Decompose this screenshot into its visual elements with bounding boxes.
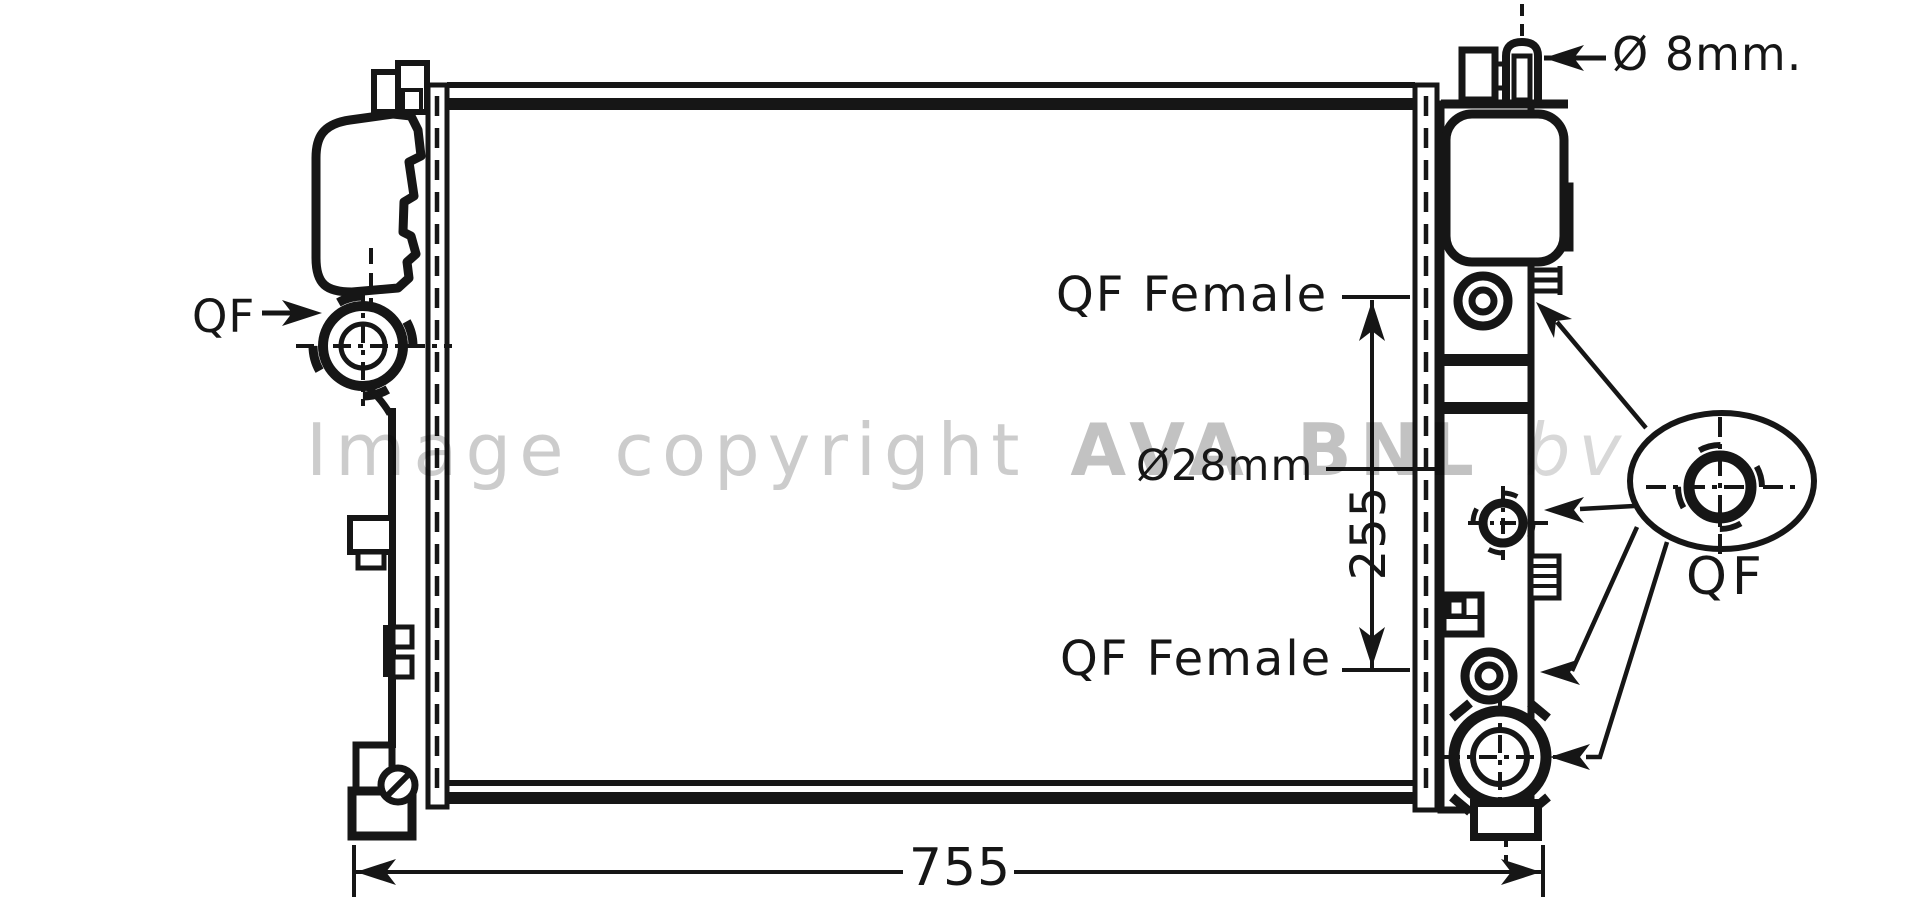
tank-square-bracket bbox=[1443, 595, 1481, 634]
label-filler-diameter: Ø 8mm. bbox=[1612, 30, 1802, 78]
label-qf-female-lower: QF Female bbox=[1060, 634, 1332, 684]
label-qf-left: QF bbox=[192, 293, 255, 340]
left-foot-bracket bbox=[352, 745, 415, 836]
label-port-diameter: Ø28mm bbox=[1136, 444, 1313, 489]
filler-diameter-arrow bbox=[1544, 45, 1606, 71]
left-clip-lower bbox=[383, 625, 412, 677]
radiator-technical-drawing: Image copyright AVA BNL bv QF Ø 8mm. QF … bbox=[0, 0, 1920, 923]
lower-qf-female-port bbox=[1465, 652, 1513, 700]
watermark: Image copyright AVA BNL bv bbox=[306, 408, 1629, 492]
label-qf-female-upper: QF Female bbox=[1056, 270, 1328, 320]
label-dim-255: 255 bbox=[1341, 473, 1397, 593]
left-mounting-bracket bbox=[316, 114, 421, 316]
label-dim-755: 755 bbox=[908, 841, 1012, 896]
left-qf-arrow bbox=[262, 300, 322, 326]
watermark-prefix: Image copyright bbox=[306, 408, 1070, 492]
watermark-suffix: bv bbox=[1482, 408, 1629, 492]
qf-detail-callout bbox=[1536, 302, 1814, 770]
left-clip-upper bbox=[350, 518, 392, 568]
label-qf-callout: QF bbox=[1686, 550, 1767, 605]
filler-neck bbox=[1441, 4, 1568, 104]
